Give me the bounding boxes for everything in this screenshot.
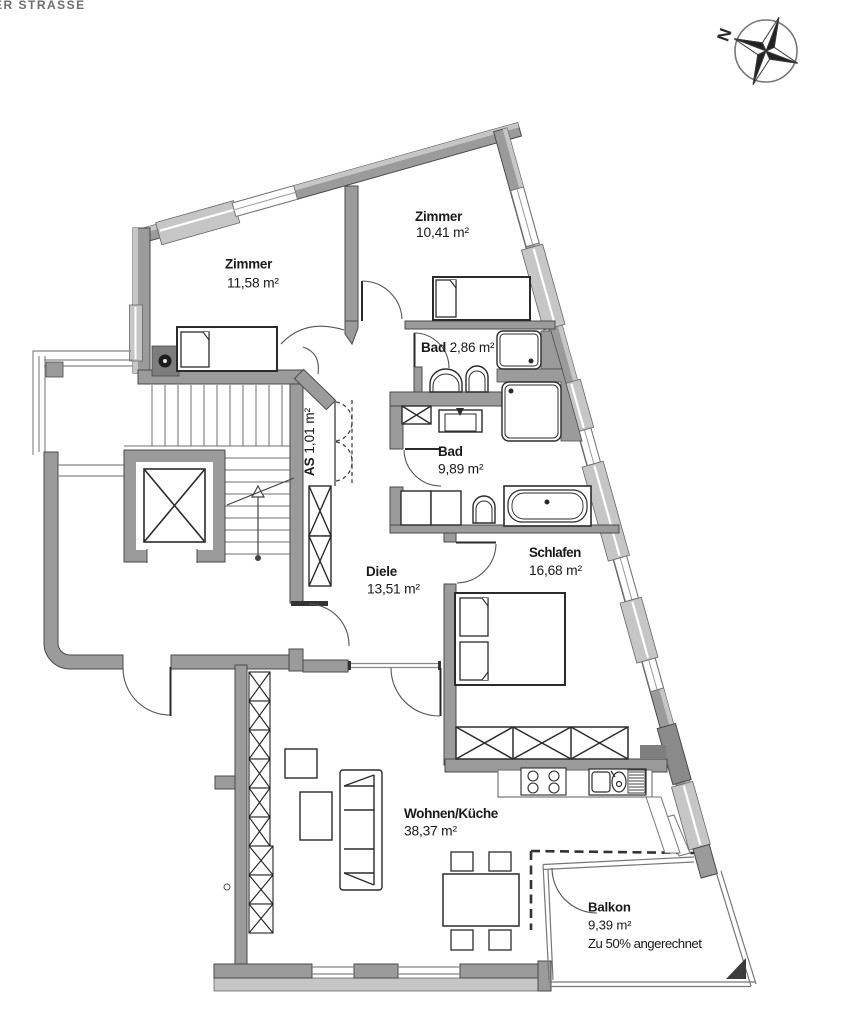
svg-text:Zu 50% angerechnet: Zu 50% angerechnet — [588, 936, 702, 951]
svg-text:N: N — [714, 26, 736, 44]
svg-text:16,68 m²: 16,68 m² — [529, 563, 582, 578]
svg-text:AS 1,01 m²: AS 1,01 m² — [302, 407, 317, 476]
svg-text:Zimmer: Zimmer — [225, 257, 273, 272]
svg-text:9,89 m²: 9,89 m² — [438, 462, 484, 477]
svg-text:11,58 m²: 11,58 m² — [227, 276, 279, 291]
svg-text:ER STRASSE: ER STRASSE — [0, 0, 86, 12]
svg-text:Schlafen: Schlafen — [529, 545, 581, 560]
svg-text:10,41 m²: 10,41 m² — [416, 225, 469, 240]
svg-text:38,37 m²: 38,37 m² — [404, 824, 457, 839]
svg-text:Diele: Diele — [366, 564, 397, 579]
svg-text:Balkon: Balkon — [588, 900, 631, 915]
svg-text:Bad 2,86 m²: Bad 2,86 m² — [421, 340, 495, 355]
svg-text:Bad: Bad — [438, 444, 463, 459]
svg-text:Wohnen/Küche: Wohnen/Küche — [404, 806, 499, 821]
svg-text:Zimmer: Zimmer — [415, 209, 463, 224]
svg-text:13,51 m²: 13,51 m² — [367, 582, 420, 597]
svg-text:9,39 m²: 9,39 m² — [588, 918, 632, 933]
